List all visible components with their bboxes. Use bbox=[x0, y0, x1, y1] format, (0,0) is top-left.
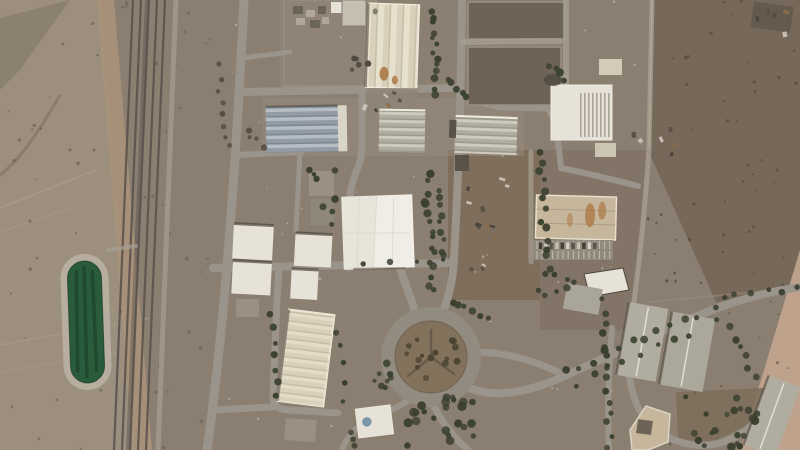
tree bbox=[421, 409, 427, 415]
ground-speckle bbox=[673, 272, 676, 275]
ground-speckle bbox=[91, 22, 94, 25]
ground-speckle bbox=[330, 425, 332, 427]
tree bbox=[571, 280, 577, 286]
tree bbox=[267, 311, 274, 318]
tree bbox=[431, 74, 439, 82]
white-box-building bbox=[232, 223, 274, 260]
tree bbox=[425, 178, 430, 183]
tree bbox=[227, 143, 232, 148]
tree bbox=[694, 315, 699, 320]
tree bbox=[459, 398, 468, 407]
tree bbox=[538, 219, 544, 225]
ground-speckle bbox=[722, 233, 725, 236]
tree bbox=[486, 316, 491, 321]
ground-speckle bbox=[325, 420, 326, 421]
tree bbox=[599, 329, 607, 337]
hut bbox=[293, 6, 303, 14]
ground-speckle bbox=[728, 312, 730, 314]
tree bbox=[605, 363, 610, 368]
ground-speckle bbox=[76, 161, 80, 165]
tree bbox=[431, 415, 436, 420]
tree bbox=[306, 167, 313, 174]
tree bbox=[448, 79, 455, 86]
tree bbox=[329, 222, 334, 227]
gray-building bbox=[342, 0, 366, 26]
tree bbox=[383, 385, 388, 390]
tree bbox=[404, 351, 409, 356]
ground-speckle bbox=[730, 13, 732, 15]
tree bbox=[552, 272, 558, 278]
tree bbox=[415, 365, 420, 370]
tree bbox=[216, 89, 220, 93]
tree bbox=[471, 433, 476, 438]
tree bbox=[387, 259, 393, 265]
tree bbox=[544, 238, 551, 245]
ground-speckle bbox=[10, 292, 12, 294]
ground-speckle bbox=[154, 391, 157, 394]
tree bbox=[638, 353, 643, 358]
ground-speckle bbox=[672, 57, 674, 59]
ground-speckle bbox=[723, 1, 726, 4]
bluegray-warehouse bbox=[266, 105, 348, 152]
mosque-compound bbox=[355, 405, 393, 438]
parked-vehicle bbox=[577, 243, 580, 250]
ground-speckle bbox=[209, 38, 211, 40]
roof-skylights bbox=[580, 93, 610, 137]
tree bbox=[602, 311, 609, 318]
vehicle-or-debris bbox=[631, 132, 636, 138]
tree bbox=[437, 219, 442, 224]
tree bbox=[341, 399, 345, 403]
tree bbox=[722, 295, 727, 300]
ground-speckle bbox=[754, 90, 757, 93]
ground-speckle bbox=[752, 80, 756, 84]
tree bbox=[451, 338, 457, 344]
tree bbox=[383, 360, 391, 368]
tree bbox=[365, 60, 371, 66]
tree bbox=[656, 342, 661, 347]
tree bbox=[272, 368, 278, 374]
tree bbox=[430, 19, 436, 25]
tree bbox=[469, 399, 476, 406]
ground-speckle bbox=[736, 120, 738, 122]
ground-speckle bbox=[685, 83, 688, 86]
tree bbox=[565, 277, 570, 282]
tree bbox=[372, 379, 376, 383]
hut bbox=[296, 18, 305, 25]
ground-speckle bbox=[62, 42, 65, 45]
tree bbox=[703, 411, 708, 416]
ground-speckle bbox=[720, 385, 722, 387]
tree bbox=[562, 366, 570, 374]
ground-speckle bbox=[28, 219, 31, 222]
ground-speckle bbox=[205, 42, 207, 44]
tree bbox=[735, 441, 740, 446]
ground-speckle bbox=[266, 187, 267, 188]
hut bbox=[306, 10, 315, 17]
tree bbox=[247, 135, 251, 139]
ground-speckle bbox=[772, 282, 774, 284]
tree bbox=[477, 313, 483, 319]
ground-speckle bbox=[752, 173, 754, 175]
ground-speckle bbox=[723, 100, 725, 102]
loading-yard bbox=[366, 88, 418, 110]
tree bbox=[535, 167, 543, 175]
tree bbox=[261, 144, 267, 150]
tree bbox=[333, 330, 339, 336]
tree bbox=[731, 291, 737, 297]
ground-speckle bbox=[36, 178, 38, 180]
tree bbox=[683, 394, 688, 399]
hut bbox=[310, 20, 320, 28]
ground-speckle bbox=[12, 159, 15, 162]
annex-building bbox=[599, 59, 622, 75]
tree bbox=[738, 344, 743, 349]
ground-speckle bbox=[55, 398, 58, 401]
ground-speckle bbox=[699, 95, 701, 97]
tree bbox=[436, 194, 443, 201]
tree bbox=[607, 400, 613, 406]
ground-speckle bbox=[68, 148, 71, 151]
large-white-building bbox=[342, 195, 415, 270]
tree bbox=[216, 61, 221, 66]
ground-speckle bbox=[794, 82, 798, 86]
ground-speckle bbox=[660, 213, 663, 216]
parked-vehicle bbox=[550, 243, 553, 250]
tree bbox=[221, 124, 227, 130]
ground-speckle bbox=[318, 277, 321, 280]
tree bbox=[438, 212, 445, 219]
tree bbox=[601, 344, 608, 351]
tree bbox=[415, 357, 421, 363]
ground-speckle bbox=[755, 189, 757, 191]
tree bbox=[351, 56, 357, 62]
tree bbox=[602, 388, 609, 395]
tree bbox=[350, 437, 356, 443]
ground-speckle bbox=[188, 330, 191, 333]
dark-yard bbox=[468, 2, 565, 39]
tree bbox=[341, 360, 346, 365]
cream-warehouse-north bbox=[366, 3, 420, 89]
parked-vehicle bbox=[588, 243, 591, 250]
tree bbox=[738, 406, 744, 412]
ground-speckle bbox=[557, 281, 559, 283]
ground-speckle bbox=[151, 195, 154, 198]
tree bbox=[542, 251, 550, 259]
ground-speckle bbox=[601, 267, 603, 269]
ground-speckle bbox=[125, 1, 129, 5]
ground-speckle bbox=[759, 337, 761, 339]
tree bbox=[794, 284, 799, 289]
tree bbox=[223, 135, 227, 139]
ground-speckle bbox=[748, 230, 751, 233]
parked-vehicle bbox=[566, 243, 569, 250]
tree bbox=[219, 77, 224, 82]
tree bbox=[406, 343, 412, 349]
tree bbox=[726, 323, 733, 330]
road-southwest-link bbox=[213, 407, 273, 410]
tree bbox=[434, 61, 439, 66]
ground-speckle bbox=[122, 6, 125, 9]
annex bbox=[449, 120, 457, 138]
ground-speckle bbox=[782, 284, 784, 286]
ground-speckle bbox=[760, 159, 762, 161]
tree bbox=[547, 266, 554, 273]
ground-speckle bbox=[93, 149, 96, 152]
tree bbox=[452, 344, 459, 351]
tree bbox=[423, 209, 431, 217]
yard-service-road bbox=[463, 41, 560, 42]
tree bbox=[461, 304, 466, 309]
tree bbox=[463, 94, 470, 101]
tree bbox=[744, 365, 751, 372]
tree bbox=[702, 443, 707, 448]
ground-speckle bbox=[355, 191, 356, 192]
tree bbox=[273, 393, 279, 399]
tree bbox=[536, 288, 542, 294]
tree bbox=[608, 411, 613, 416]
ground-speckle bbox=[199, 346, 203, 350]
tree bbox=[428, 275, 434, 281]
tree bbox=[603, 418, 610, 425]
tree bbox=[423, 375, 429, 381]
ground-speckle bbox=[787, 367, 789, 369]
tree bbox=[730, 407, 738, 415]
ground-speckle bbox=[162, 446, 166, 450]
ground-speckle bbox=[25, 337, 27, 339]
tree bbox=[274, 378, 281, 385]
ground-speckle bbox=[40, 127, 43, 130]
tree bbox=[712, 427, 719, 434]
tree bbox=[469, 307, 477, 315]
dark-utility-building bbox=[455, 155, 469, 171]
tree bbox=[312, 172, 317, 177]
ground-speckle bbox=[184, 31, 186, 33]
gray-warehouse-a bbox=[379, 110, 426, 153]
ground-speckle bbox=[33, 124, 36, 127]
ground-speckle bbox=[502, 155, 504, 157]
ground-speckle bbox=[257, 417, 260, 420]
tree bbox=[440, 252, 446, 258]
ground-speckle bbox=[647, 217, 650, 220]
parked-vehicle bbox=[593, 243, 596, 250]
ground-speckle bbox=[746, 164, 749, 167]
ground-speckle bbox=[700, 282, 702, 284]
tree bbox=[342, 380, 348, 386]
ground-speckle bbox=[736, 71, 738, 73]
tree bbox=[652, 327, 659, 334]
tan-building bbox=[535, 195, 616, 240]
tree bbox=[630, 336, 637, 343]
tree bbox=[576, 366, 581, 371]
ground-speckle bbox=[490, 321, 492, 323]
tree bbox=[574, 384, 579, 389]
tree bbox=[539, 194, 546, 201]
ground-speckle bbox=[201, 271, 203, 273]
tree bbox=[377, 371, 382, 376]
ground-speckle bbox=[709, 32, 712, 35]
tree bbox=[779, 289, 786, 296]
ground-speckle bbox=[675, 239, 677, 241]
parked-vehicle bbox=[582, 243, 585, 250]
blue-dome bbox=[361, 416, 373, 428]
tree bbox=[270, 324, 277, 331]
tree bbox=[732, 336, 739, 343]
tree bbox=[542, 293, 548, 299]
ground-speckle bbox=[125, 5, 127, 7]
tree bbox=[431, 91, 439, 99]
parked-vehicle bbox=[561, 243, 564, 250]
tree bbox=[563, 284, 570, 291]
ground-speckle bbox=[770, 300, 772, 302]
tree bbox=[220, 111, 226, 117]
tree bbox=[427, 219, 432, 224]
ground-speckle bbox=[777, 313, 779, 315]
ground-speckle bbox=[684, 56, 688, 60]
tree bbox=[437, 229, 444, 236]
tree bbox=[454, 301, 461, 308]
tree bbox=[537, 149, 544, 156]
ground-speckle bbox=[674, 280, 677, 283]
tree bbox=[748, 290, 755, 297]
building-shadow bbox=[234, 223, 274, 225]
water-reservoir bbox=[60, 253, 113, 391]
roof-ridges bbox=[454, 116, 517, 155]
ground-speckle bbox=[752, 226, 755, 229]
ground-speckle bbox=[10, 406, 13, 409]
roof-ridges bbox=[266, 105, 339, 152]
ground-speckle bbox=[185, 257, 189, 261]
ground-speckle bbox=[665, 279, 668, 282]
ground-speckle bbox=[179, 106, 182, 109]
tree bbox=[743, 352, 750, 359]
gray-building-south bbox=[284, 418, 316, 442]
tree bbox=[332, 167, 338, 173]
tree bbox=[766, 287, 771, 292]
tree bbox=[430, 234, 435, 239]
tree bbox=[338, 343, 343, 348]
tree bbox=[441, 258, 445, 262]
tree bbox=[429, 8, 436, 15]
white-box-building bbox=[294, 233, 333, 268]
roof-ridge-cap bbox=[379, 110, 425, 111]
roof-ridges bbox=[366, 3, 420, 89]
tree bbox=[686, 333, 692, 339]
courtyard bbox=[636, 419, 653, 435]
ground-speckle bbox=[777, 76, 780, 79]
ground-speckle bbox=[474, 271, 476, 273]
ground-speckle bbox=[557, 388, 559, 390]
tree bbox=[356, 62, 362, 68]
tree bbox=[554, 289, 559, 294]
tree bbox=[667, 323, 672, 328]
ground-speckle bbox=[753, 273, 755, 275]
tree bbox=[753, 374, 760, 381]
ground-speckle bbox=[748, 62, 750, 64]
ground-speckle bbox=[584, 29, 586, 31]
ground-speckle bbox=[551, 387, 553, 389]
road-upper-horizontal bbox=[241, 88, 455, 92]
tree bbox=[273, 341, 278, 346]
ground-speckle bbox=[235, 24, 238, 27]
tree bbox=[436, 188, 441, 193]
tree bbox=[713, 305, 719, 311]
ground-speckle bbox=[228, 398, 230, 400]
ground-speckle bbox=[18, 138, 21, 141]
tree bbox=[415, 338, 420, 343]
tree bbox=[542, 177, 547, 182]
ground-speckle bbox=[143, 196, 146, 199]
ground-speckle bbox=[694, 392, 696, 394]
tree bbox=[619, 359, 625, 365]
tree bbox=[442, 360, 449, 367]
ground-speckle bbox=[207, 258, 210, 261]
ground-speckle bbox=[200, 420, 203, 423]
ground-speckle bbox=[655, 222, 657, 224]
tree bbox=[671, 336, 678, 343]
ground-speckle bbox=[724, 200, 726, 202]
tree bbox=[616, 346, 622, 352]
ground-speckle bbox=[31, 128, 33, 130]
tree bbox=[417, 401, 426, 410]
tree bbox=[543, 206, 549, 212]
tree bbox=[681, 315, 689, 323]
tree bbox=[745, 407, 753, 415]
tree bbox=[348, 430, 354, 436]
tree bbox=[271, 351, 278, 358]
ground-speckle bbox=[793, 49, 796, 52]
tree bbox=[437, 202, 443, 208]
tree bbox=[433, 67, 440, 74]
gray-warehouse-b bbox=[448, 116, 517, 155]
tree bbox=[361, 261, 366, 266]
white-box-building bbox=[231, 260, 272, 295]
ground-speckle bbox=[726, 119, 729, 122]
roof-ridges bbox=[379, 110, 426, 153]
vehicle-or-debris bbox=[668, 127, 672, 132]
ground-speckle bbox=[428, 136, 429, 137]
tree bbox=[442, 237, 447, 242]
tree bbox=[454, 358, 461, 365]
tree bbox=[441, 397, 450, 406]
tree bbox=[541, 188, 549, 196]
tree bbox=[603, 374, 610, 381]
tree bbox=[603, 352, 610, 359]
tree bbox=[542, 224, 550, 232]
ground-speckle bbox=[8, 111, 10, 113]
tree bbox=[453, 86, 460, 93]
tree bbox=[733, 395, 740, 402]
tree bbox=[725, 412, 730, 417]
tree bbox=[741, 433, 747, 439]
tree bbox=[640, 336, 648, 344]
ground-speckle bbox=[688, 238, 691, 241]
gray-small-building bbox=[236, 299, 259, 317]
tree bbox=[561, 78, 567, 84]
tree bbox=[431, 287, 436, 292]
tree bbox=[331, 195, 339, 203]
tree bbox=[254, 136, 258, 140]
tree bbox=[425, 191, 432, 198]
ground-speckle bbox=[486, 254, 488, 256]
ground-speckle bbox=[187, 12, 190, 15]
tree bbox=[412, 417, 421, 426]
parked-vehicle bbox=[539, 243, 542, 250]
tree bbox=[749, 414, 758, 423]
tree bbox=[434, 42, 439, 47]
ground-speckle bbox=[29, 268, 32, 271]
ground-speckle bbox=[773, 182, 775, 184]
